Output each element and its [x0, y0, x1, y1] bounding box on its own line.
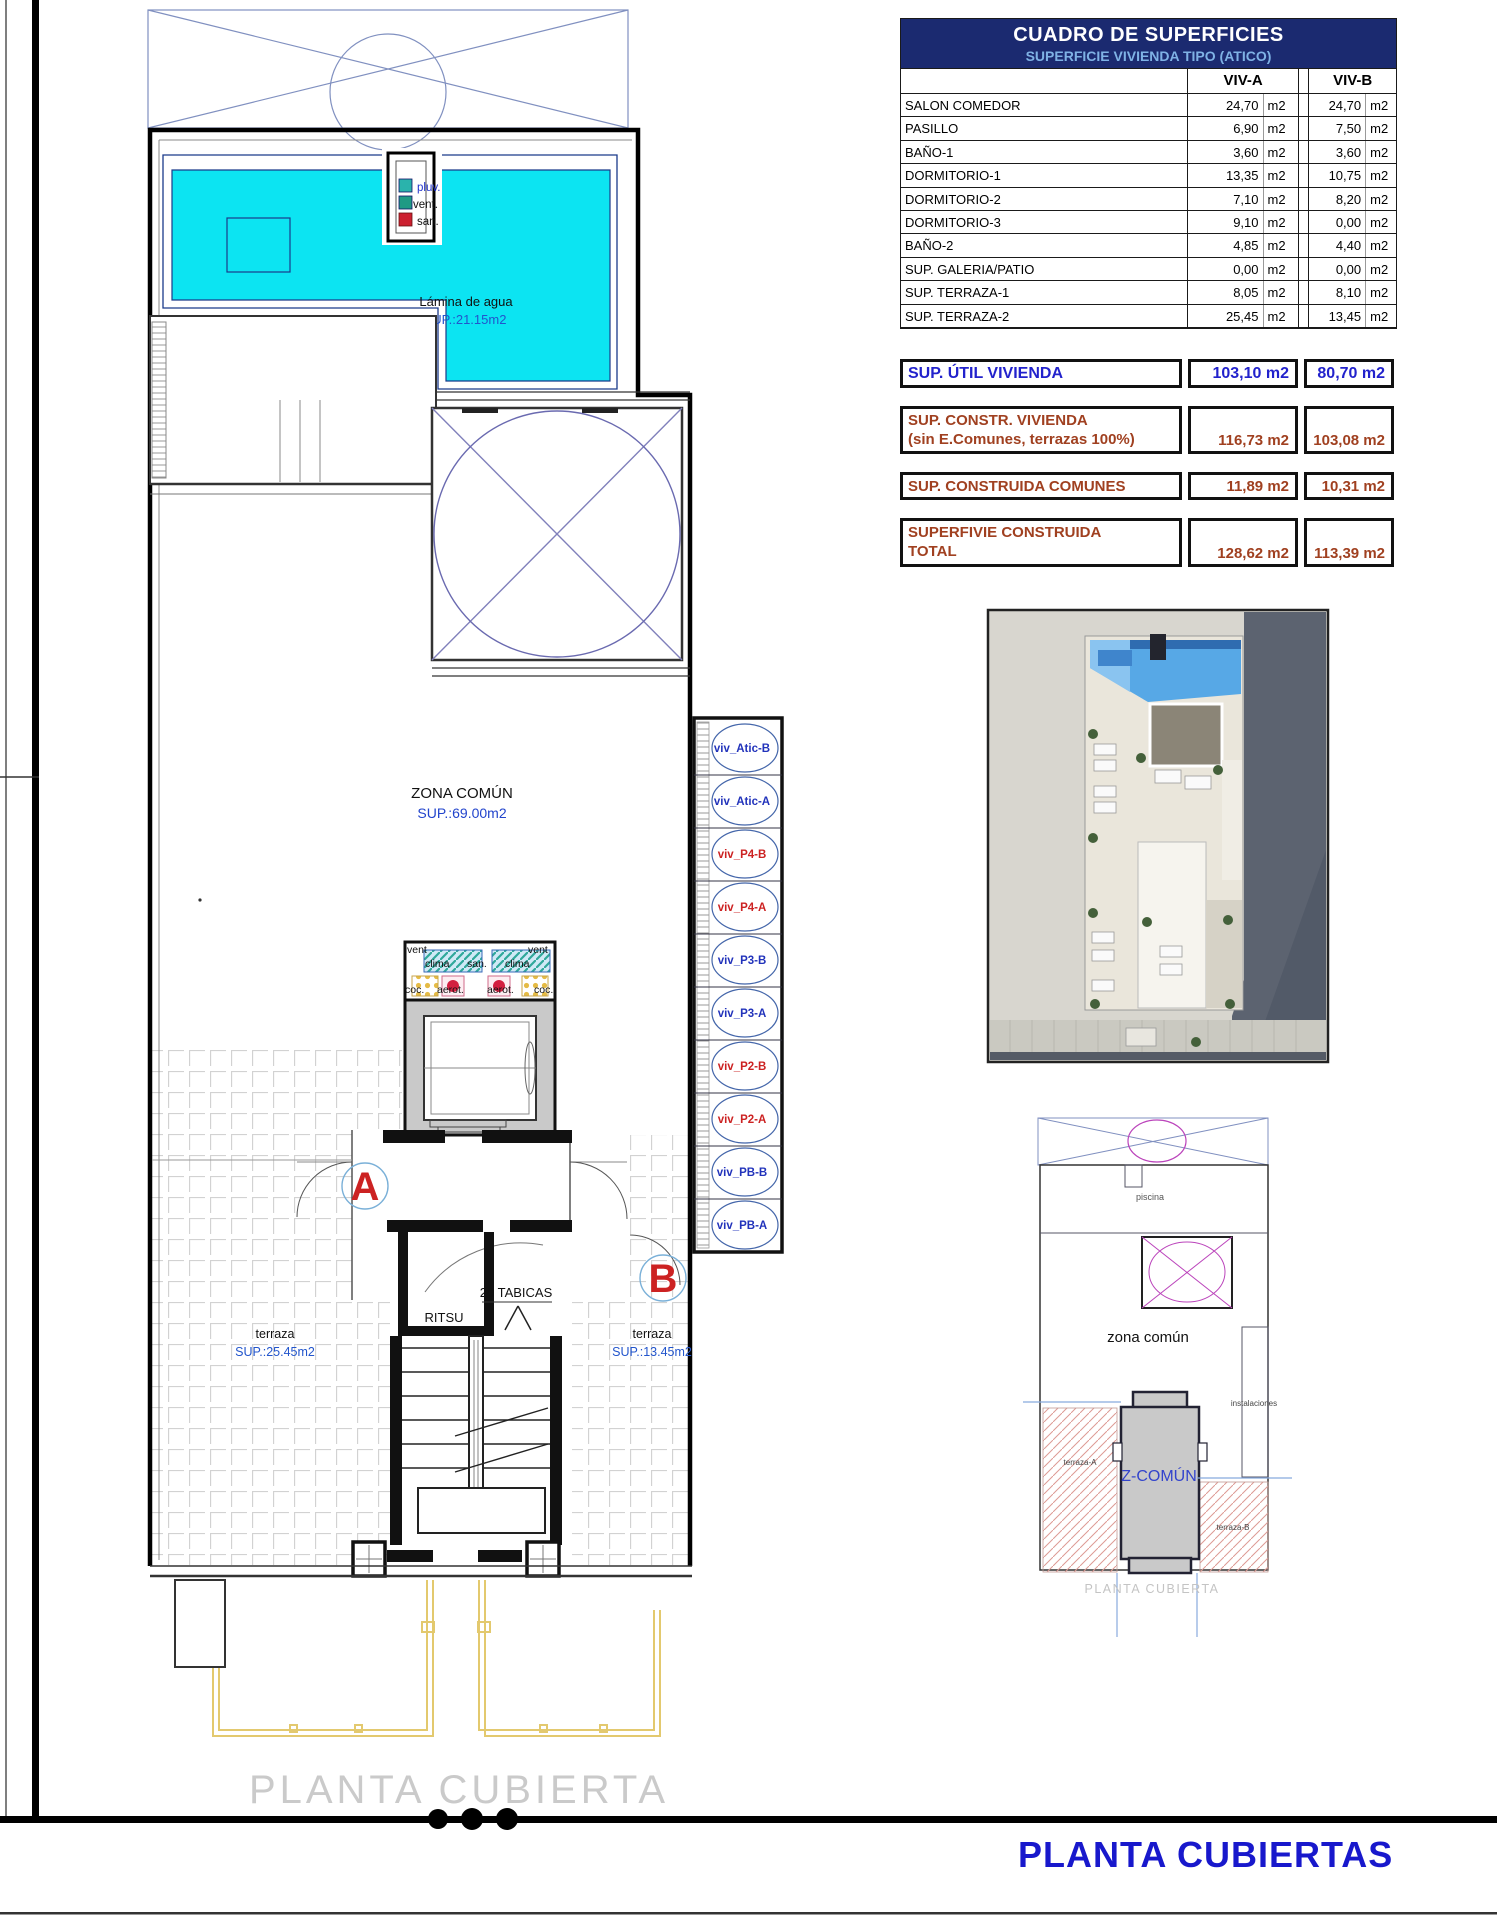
tabicas-label: 20 TABICAS [480, 1285, 553, 1300]
viv-riser-shaft: viv_Atic-B viv_Atic-A viv_P4-B viv_P4-A … [694, 718, 782, 1252]
comunes-row: SUP. CONSTRUIDA COMUNES 11,89 m2 10,31 m… [900, 472, 1397, 500]
sheet: Lámina de agua SUP.:21.15m2 pluv. vent. … [0, 0, 1497, 1920]
shaft-san-label: san. [417, 216, 439, 228]
inst-coc-l: coc. [405, 984, 424, 996]
inst-vent-l: vent [407, 944, 427, 956]
terraza-a-area: SUP.:25.45m2 [235, 1345, 315, 1359]
viv-label: viv_P4-B [718, 849, 767, 861]
viv-label: viv_PB-A [717, 1220, 768, 1232]
table-row: PASILLO6,90m27,50m2 [901, 117, 1396, 140]
door-b-letter: B [649, 1257, 678, 1301]
viv-label: viv_Atic-A [714, 796, 770, 808]
table-row: SUP. GALERIA/PATIO0,00m20,00m2 [901, 258, 1396, 281]
vent-icon [399, 196, 412, 209]
floor-plan: Lámina de agua SUP.:21.15m2 pluv. vent. … [148, 10, 782, 1812]
viv-label: viv_P3-A [718, 1008, 767, 1020]
terraza-b-area: SUP.:13.45m2 [612, 1345, 692, 1359]
keyplan-terraza-a: terraza-A [1064, 1458, 1098, 1467]
util-viv-b: 80,70 m2 [1304, 359, 1394, 388]
constr-label: SUP. CONSTR. VIVIENDA (sin E.Comunes, te… [900, 406, 1182, 455]
constr-row: SUP. CONSTR. VIVIENDA (sin E.Comunes, te… [900, 406, 1397, 455]
util-row: SUP. ÚTIL VIVIENDA 103,10 m2 80,70 m2 [900, 359, 1397, 388]
keyplan-z-comun: Z-COMÚN [1121, 1466, 1197, 1485]
viv-label: viv_P2-B [718, 1061, 767, 1073]
keyplan-terraza-b: terraza-B [1217, 1523, 1250, 1532]
table-row: BAÑO-13,60m23,60m2 [901, 141, 1396, 164]
inst-clima-l: clima [425, 958, 450, 970]
keyplan-caption: PLANTA CUBIERTA [1084, 1582, 1219, 1596]
table-row: DORMITORIO-39,10m20,00m2 [901, 211, 1396, 234]
constr-viv-a: 116,73 m2 [1188, 406, 1298, 455]
inst-coc-r: coc. [534, 984, 553, 996]
col-viv-a: VIV-A [1188, 69, 1300, 93]
total-viv-b: 113,39 m2 [1304, 518, 1394, 567]
viv-label: viv_PB-B [717, 1167, 768, 1179]
table-title: CUADRO DE SUPERFICIES [903, 24, 1394, 47]
table-subtitle: SUPERFICIE VIVIENDA TIPO (ATICO) [903, 48, 1394, 64]
table-row: DORMITORIO-113,35m210,75m2 [901, 164, 1396, 187]
keyplan-piscina: piscina [1136, 1192, 1164, 1202]
inst-san-m: san. [467, 958, 487, 970]
table-row: SUP. TERRAZA-225,45m213,45m2 [901, 305, 1396, 328]
comunes-viv-a: 11,89 m2 [1188, 472, 1298, 500]
table-row: BAÑO-24,85m24,40m2 [901, 234, 1396, 257]
viv-label: viv_Atic-B [714, 743, 770, 755]
inst-clima-r: clima [505, 958, 530, 970]
skylight [432, 408, 690, 676]
roof-shaft: pluv. vent. san. [382, 148, 442, 245]
total-label: SUPERFIVIE CONSTRUIDA TOTAL [900, 518, 1182, 567]
keyplan-instalaciones: instalaciones [1231, 1399, 1277, 1408]
terraza-a-label: terraza [256, 1327, 295, 1341]
terraza-b-label: terraza [633, 1327, 672, 1341]
ladder-strip [152, 322, 166, 478]
total-row: SUPERFIVIE CONSTRUIDA TOTAL 128,62 m2 11… [900, 518, 1397, 567]
viv-label: viv_P4-A [718, 902, 767, 914]
comunes-viv-b: 10,31 m2 [1304, 472, 1394, 500]
table-row: SUP. TERRAZA-18,05m28,10m2 [901, 281, 1396, 304]
san-icon [399, 213, 412, 226]
zona-comun-area: SUP.:69.00m2 [417, 805, 506, 821]
util-label: SUP. ÚTIL VIVIENDA [900, 359, 1182, 388]
col-viv-b: VIV-B [1309, 69, 1396, 93]
awning-outlines [213, 1580, 660, 1736]
zona-comun-label: ZONA COMÚN [411, 785, 513, 802]
column-markers [353, 1542, 559, 1576]
viv-label: viv_P2-A [718, 1114, 767, 1126]
table-row: DORMITORIO-27,10m28,20m2 [901, 188, 1396, 211]
table-row: SALON COMEDOR24,70m224,70m2 [901, 94, 1396, 117]
left-rooms [150, 316, 436, 494]
render-roofbox [1150, 704, 1222, 766]
keyplan-zona-comun: zona común [1107, 1329, 1189, 1346]
ritsu-label: RITSU [425, 1310, 464, 1325]
door-a-letter: A [351, 1165, 380, 1209]
shaft-vent-label: vent. [413, 199, 438, 211]
constr-viv-b: 103,08 m2 [1304, 406, 1394, 455]
elevator [405, 1000, 555, 1135]
ritsu-room: RITSU [398, 1232, 494, 1336]
render-3d [988, 610, 1328, 1062]
up-arrow-icon [505, 1306, 531, 1330]
roof-box [175, 1580, 225, 1667]
inst-vent-r: vent [528, 944, 548, 956]
terrace-tiles [152, 1046, 402, 1130]
inst-aerot-l: aerot. [437, 984, 464, 996]
keyplan-terraza-a-hatch [1043, 1408, 1117, 1572]
table-header: CUADRO DE SUPERFICIES SUPERFICIE VIVIEND… [901, 19, 1396, 69]
sheet-title: PLANTA CUBIERTAS [1018, 1834, 1393, 1876]
pluv-icon [399, 179, 412, 192]
surfaces-table: CUADRO DE SUPERFICIES SUPERFICIE VIVIEND… [900, 18, 1397, 567]
key-plan: piscina zona común instalaciones terraza… [1023, 1118, 1292, 1637]
pool-label: Lámina de agua [419, 294, 513, 309]
bottom-rule [0, 1816, 1497, 1823]
total-viv-a: 128,62 m2 [1188, 518, 1298, 567]
comunes-label: SUP. CONSTRUIDA COMUNES [900, 472, 1182, 500]
inst-aerot-r: aerot. [487, 984, 514, 996]
viv-label: viv_P3-B [718, 955, 767, 967]
shaft-pluv-label: pluv. [417, 182, 440, 194]
util-viv-a: 103,10 m2 [1188, 359, 1298, 388]
stairs [387, 1336, 562, 1562]
table-column-header: VIV-A VIV-B [901, 69, 1396, 94]
plan-caption: PLANTA CUBIERTA [249, 1768, 669, 1812]
